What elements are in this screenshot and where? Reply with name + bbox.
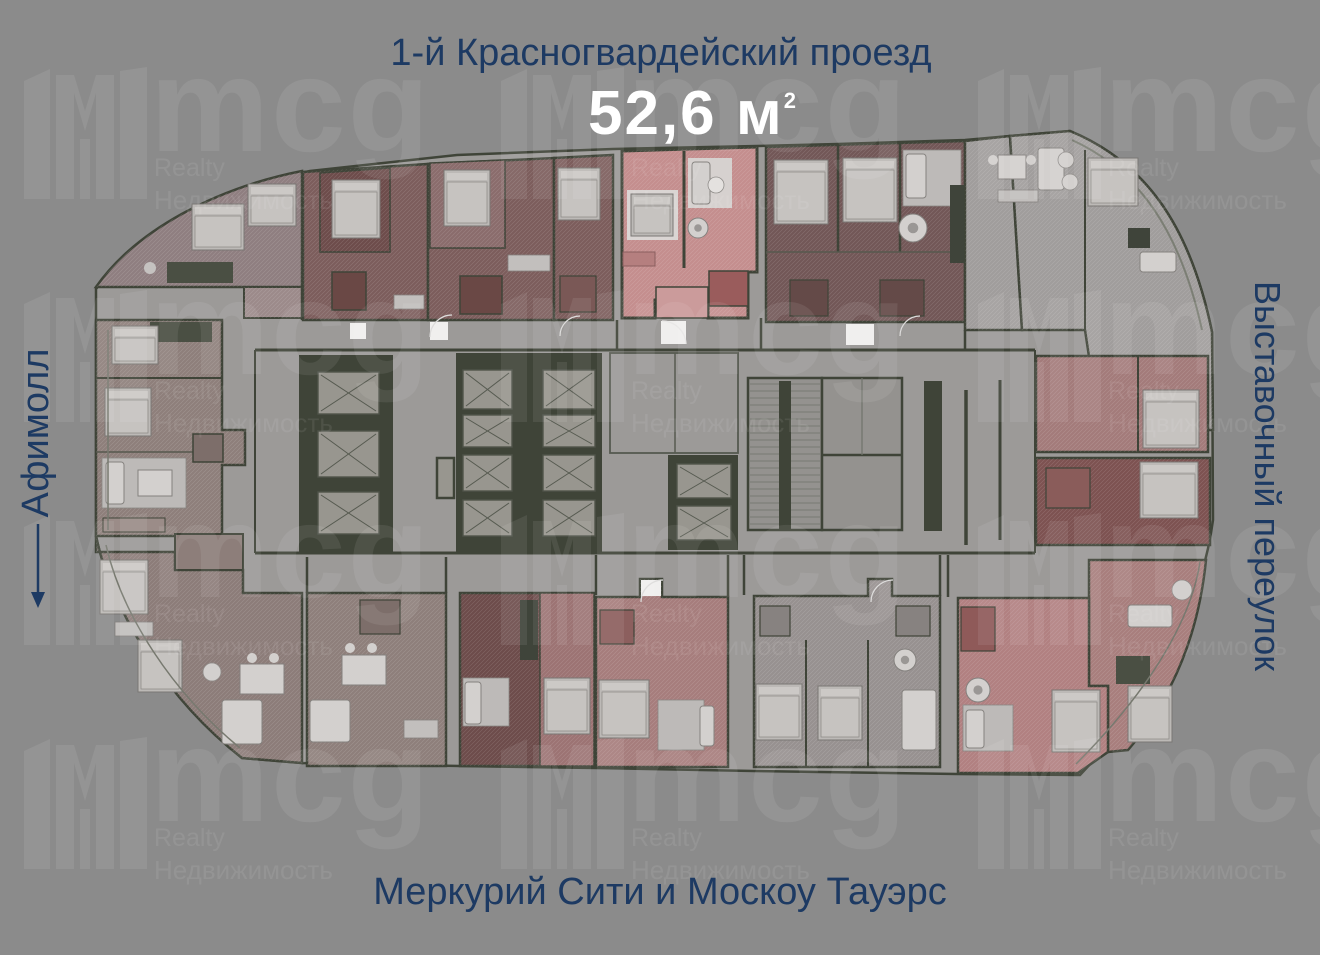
svg-text:Realty: Realty: [631, 600, 702, 628]
svg-text:Афимолл: Афимолл: [15, 348, 57, 517]
svg-text:Realty: Realty: [154, 377, 225, 405]
svg-text:Недвижимость: Недвижимость: [631, 631, 810, 661]
svg-text:Realty: Realty: [631, 154, 702, 182]
svg-text:Недвижимость: Недвижимость: [1108, 855, 1287, 885]
svg-text:Realty: Realty: [1108, 377, 1179, 405]
svg-text:52,6 м2: 52,6 м2: [588, 79, 798, 148]
svg-text:Выставочный переулок: Выставочный переулок: [1247, 281, 1288, 671]
svg-text:Realty: Realty: [1108, 600, 1179, 628]
svg-text:Недвижимость: Недвижимость: [154, 855, 333, 885]
svg-text:Недвижимость: Недвижимость: [631, 408, 810, 438]
svg-text:1-й Красногвардейский проезд: 1-й Красногвардейский проезд: [390, 32, 931, 74]
svg-text:Недвижимость: Недвижимость: [154, 408, 333, 438]
svg-text:Недвижимость: Недвижимость: [154, 185, 333, 215]
svg-text:Недвижимость: Недвижимость: [1108, 185, 1287, 215]
svg-text:Realty: Realty: [154, 824, 225, 852]
svg-text:Меркурий Сити и Москоу Тауэрс: Меркурий Сити и Москоу Тауэрс: [373, 871, 947, 913]
svg-text:Realty: Realty: [631, 824, 702, 852]
svg-text:Realty: Realty: [154, 600, 225, 628]
svg-text:Недвижимость: Недвижимость: [631, 185, 810, 215]
svg-text:Realty: Realty: [1108, 824, 1179, 852]
svg-text:Realty: Realty: [154, 154, 225, 182]
svg-text:Realty: Realty: [631, 377, 702, 405]
svg-text:Недвижимость: Недвижимость: [154, 631, 333, 661]
svg-text:Realty: Realty: [1108, 154, 1179, 182]
